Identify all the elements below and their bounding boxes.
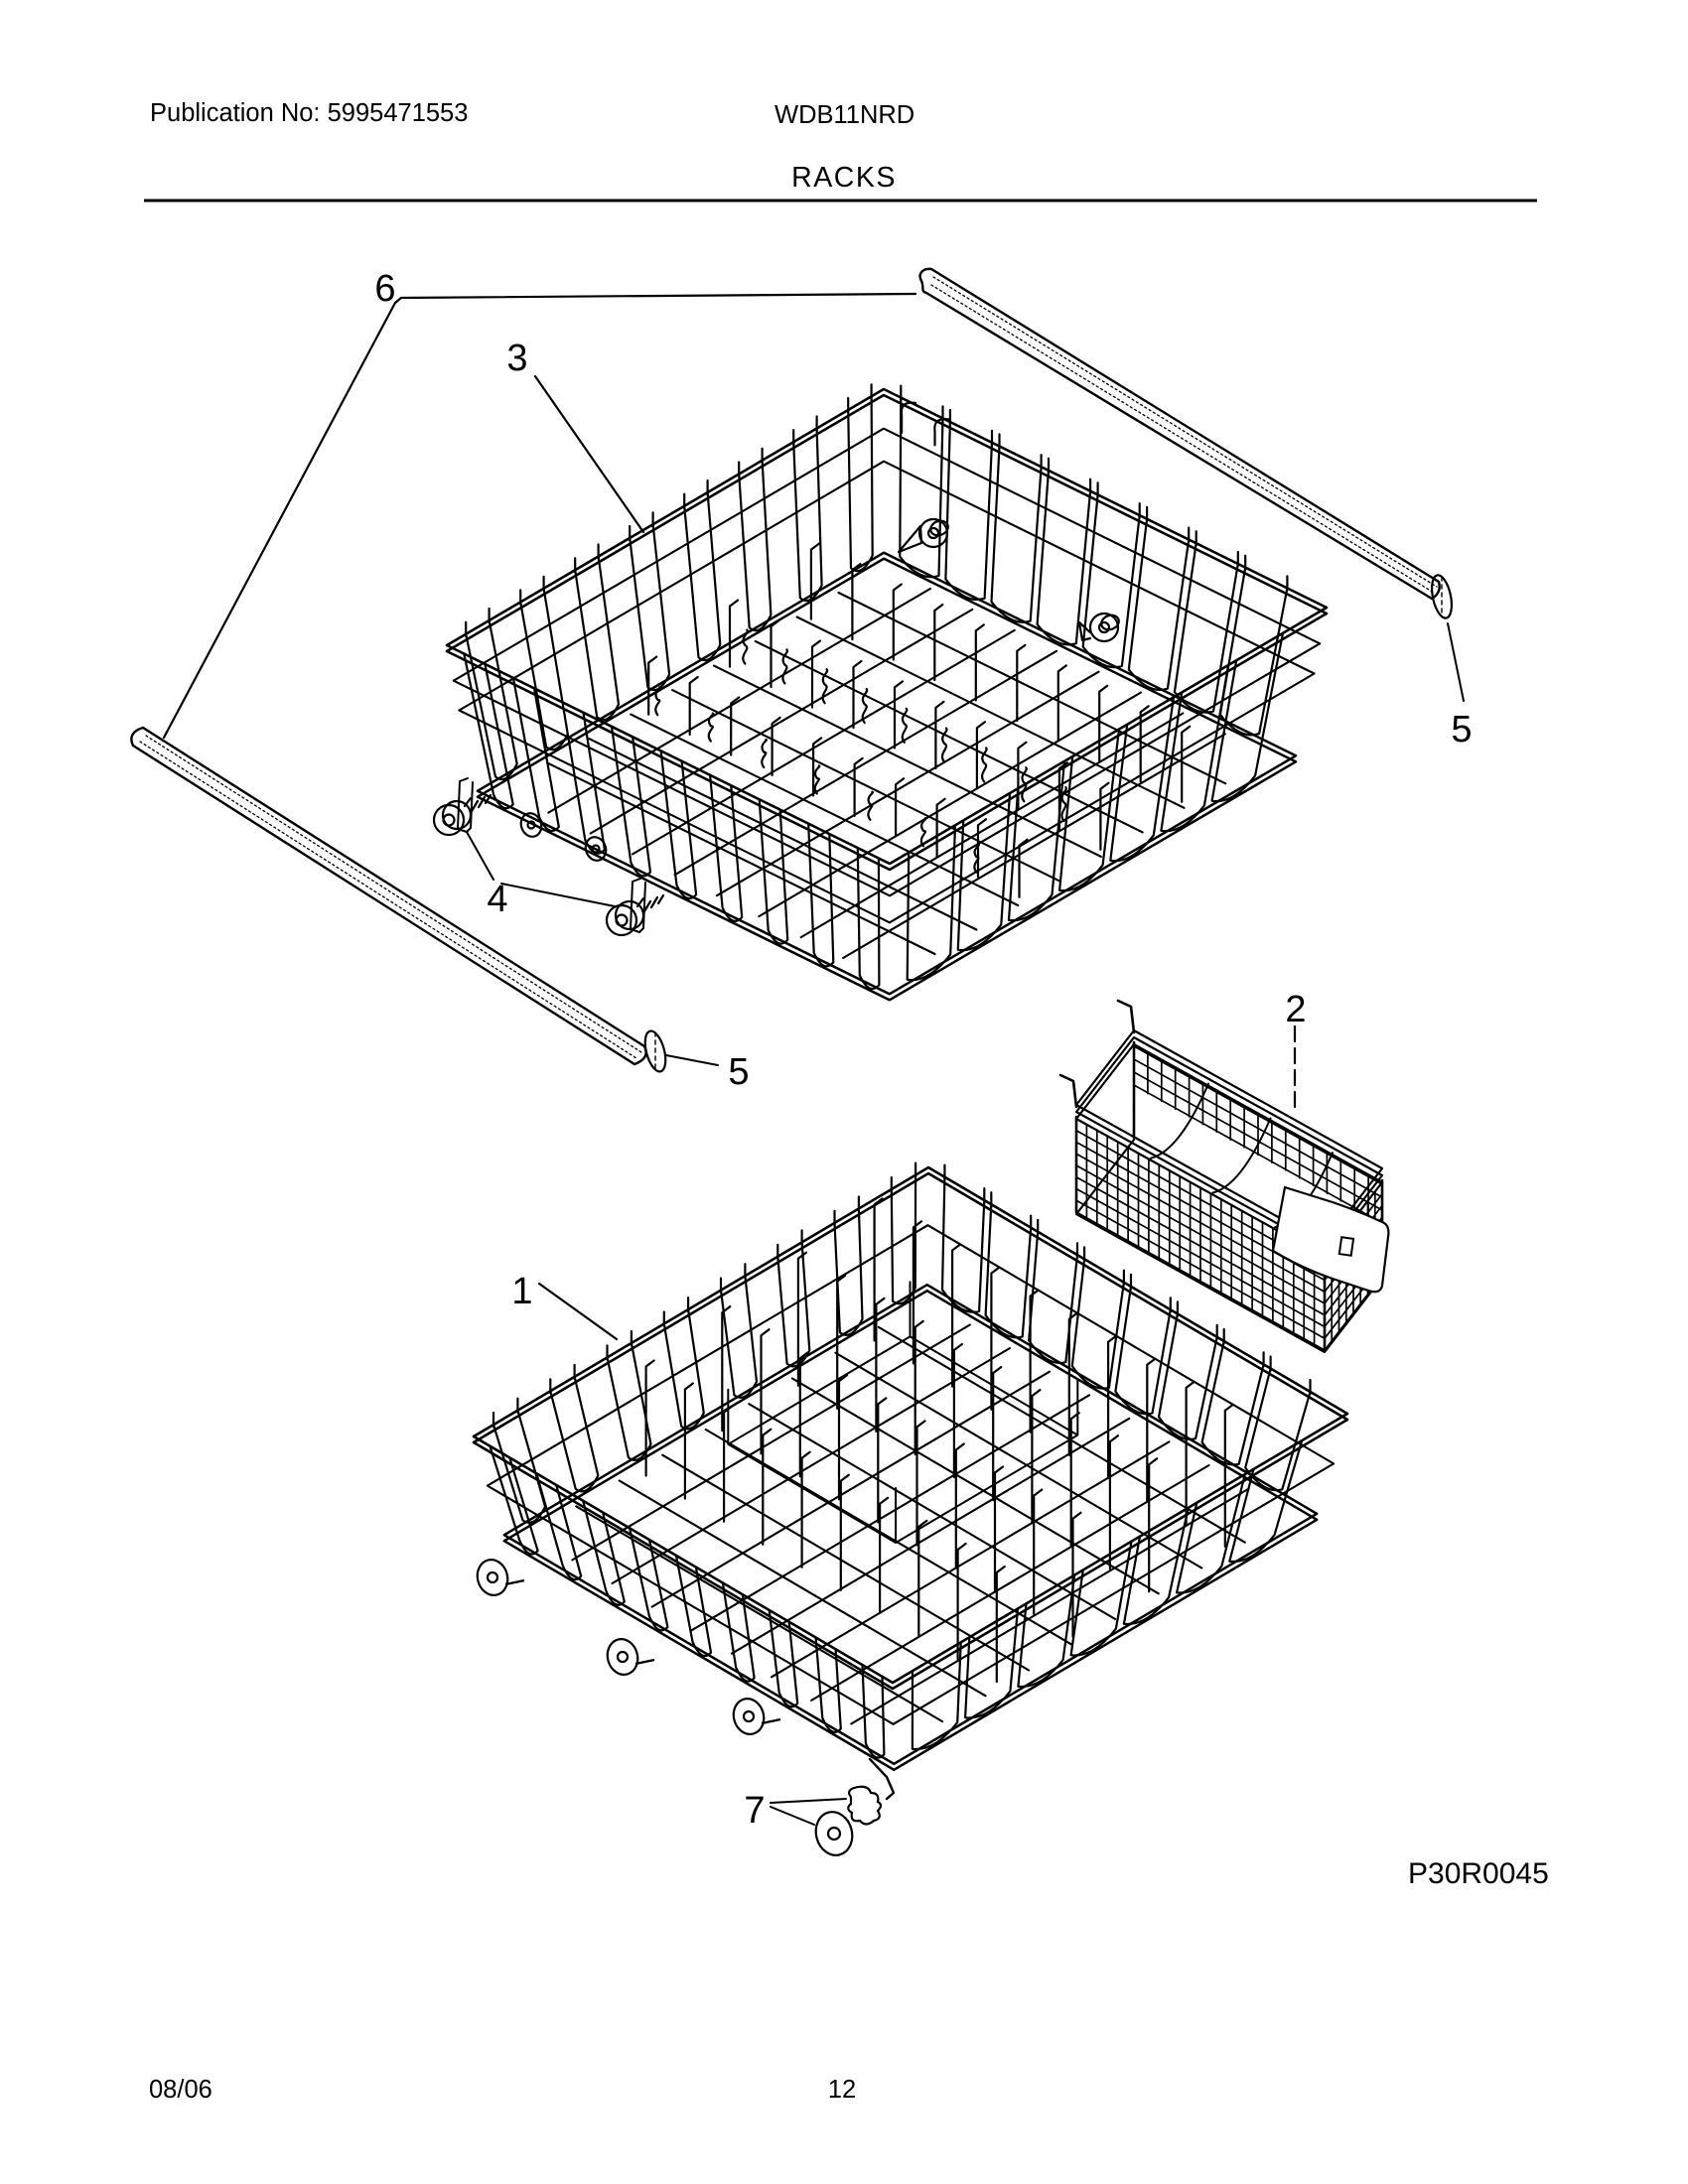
svg-text:P30R0045: P30R0045: [1408, 1857, 1549, 1890]
svg-text:RACKS: RACKS: [791, 162, 897, 194]
svg-text:5: 5: [728, 1051, 749, 1093]
svg-text:Publication No: 5995471553: Publication No: 5995471553: [150, 99, 468, 127]
svg-text:12: 12: [828, 2076, 856, 2104]
svg-text:6: 6: [374, 268, 395, 310]
svg-text:WDB11NRD: WDB11NRD: [774, 101, 914, 129]
svg-text:2: 2: [1285, 989, 1306, 1030]
svg-text:3: 3: [506, 338, 527, 379]
svg-text:1: 1: [511, 1271, 532, 1312]
svg-text:5: 5: [1451, 709, 1472, 751]
svg-text:7: 7: [744, 1790, 765, 1832]
svg-text:08/06: 08/06: [149, 2076, 212, 2104]
